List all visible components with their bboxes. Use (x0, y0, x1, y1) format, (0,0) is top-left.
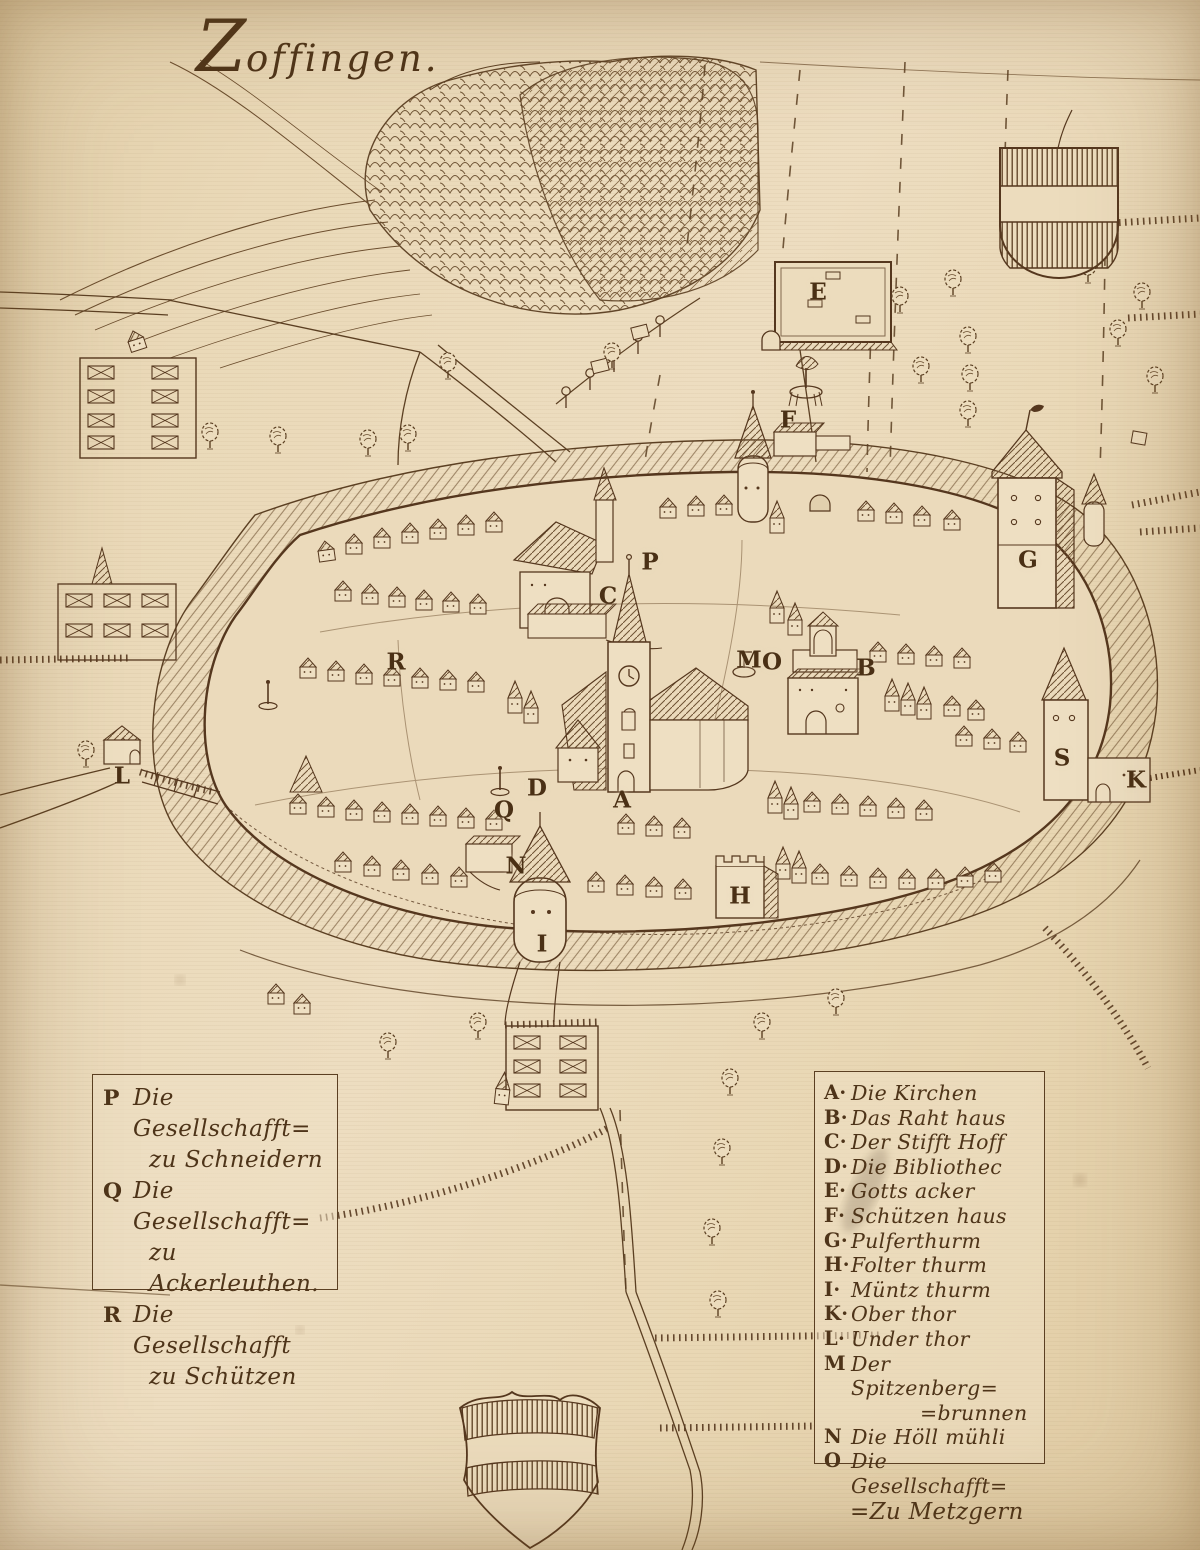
garden-plot-bottom (494, 1026, 598, 1110)
marker-cemetery: E (809, 281, 827, 304)
map-title: Zoffingen. (196, 18, 440, 80)
legend-item: I·Müntz thurm (824, 1278, 1040, 1303)
legend-item: B·Das Raht haus (824, 1106, 1040, 1131)
legend-item: R Die Gesellschafft (103, 1300, 331, 1362)
marker-fountain: M (736, 649, 761, 672)
marker-s-tower: S (1054, 747, 1071, 770)
pulver-tower-icon (992, 405, 1074, 608)
garden-plot-left (58, 548, 176, 660)
garden-plot-topleft (80, 328, 196, 458)
marker-ackerleuthen: Q (494, 799, 514, 822)
legend-item-continuation: =Zu Metzgern (850, 1499, 1040, 1526)
marker-stift-hoff: C (599, 585, 617, 608)
legend-item: ODie Gesellschafft= (824, 1449, 1040, 1498)
historic-town-map: { "title": "Zoffingen.", "colors": { "pa… (0, 0, 1200, 1550)
wall-gate-arch (810, 495, 830, 511)
cemetery-enclosure (762, 262, 897, 350)
marker-mill: N (505, 855, 526, 878)
legend-item: Q Die Gesellschafft= (103, 1176, 331, 1238)
marker-library: D (527, 777, 547, 800)
marker-under-thor: L (114, 765, 130, 788)
legend-item: A·Die Kirchen (824, 1081, 1040, 1106)
legend-item: G·Pulferthurm (824, 1229, 1040, 1254)
marker-muentz-tower: I (537, 933, 548, 956)
legend-item: L·Under thor (824, 1327, 1040, 1352)
legend-item: E·Gotts acker (824, 1179, 1040, 1204)
legend-item: NDie Höll mühli (824, 1425, 1040, 1450)
tree-planter (789, 356, 822, 406)
marker-folter-tower: H (729, 885, 751, 908)
round-tower-icon (735, 390, 771, 522)
marker-metzgern: O (762, 651, 782, 674)
legend-item: H·Folter thurm (824, 1253, 1040, 1278)
marker-schuetzen-society: R (386, 651, 405, 674)
marker-ober-thor: K (1126, 769, 1146, 792)
marker-pulver-tower: G (1018, 549, 1038, 572)
small-round-tower-icon (1082, 474, 1106, 546)
marker-church: A (613, 789, 631, 812)
marker-schuetzenhaus: F (780, 409, 796, 432)
legend-left-box: P Die Gesellschafft= zu Schneidern Q Die… (92, 1074, 338, 1290)
marker-schneidern: P (641, 551, 658, 574)
marker-town-hall: B (856, 657, 875, 680)
legend-item: F·Schützen haus (824, 1204, 1040, 1229)
legend-item: K·Ober thor (824, 1302, 1040, 1327)
legend-right-box: A·Die Kirchen B·Das Raht haus C·Der Stif… (814, 1071, 1045, 1464)
coat-of-arms-bottom (460, 1392, 600, 1548)
legend-item: MDer Spitzenberg= (824, 1352, 1040, 1401)
legend-item: P Die Gesellschafft= (103, 1083, 331, 1145)
weathercock-icon (1030, 405, 1044, 412)
beehive-icon (1131, 431, 1147, 445)
legend-item: C·Der Stifft Hoff (824, 1130, 1040, 1155)
legend-item: D·Die Bibliothec (824, 1155, 1040, 1180)
coat-of-arms-top (1000, 110, 1118, 278)
legend-item-continuation: =brunnen (920, 1401, 1040, 1425)
